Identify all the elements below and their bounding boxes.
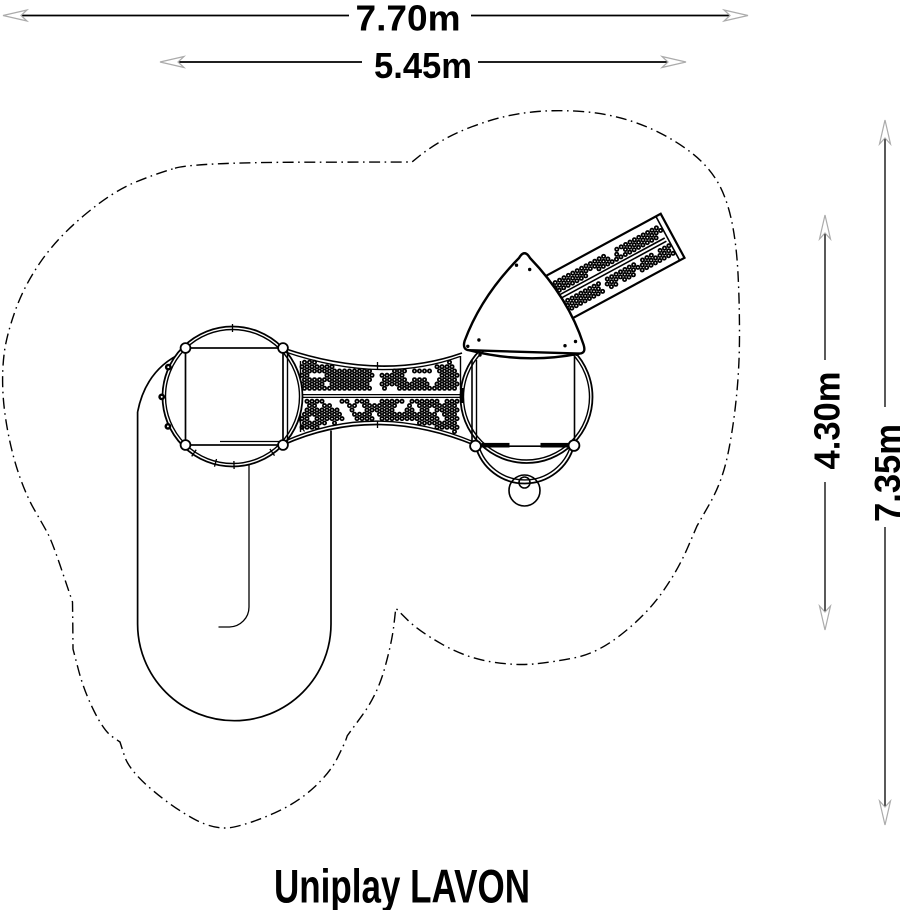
svg-text:7.35m: 7.35m	[867, 424, 900, 522]
svg-text:5.45m: 5.45m	[374, 45, 472, 86]
svg-text:7.70m: 7.70m	[356, 0, 461, 39]
svg-text:Uniplay LAVON: Uniplay LAVON	[274, 860, 530, 911]
svg-text:4.30m: 4.30m	[807, 372, 848, 470]
